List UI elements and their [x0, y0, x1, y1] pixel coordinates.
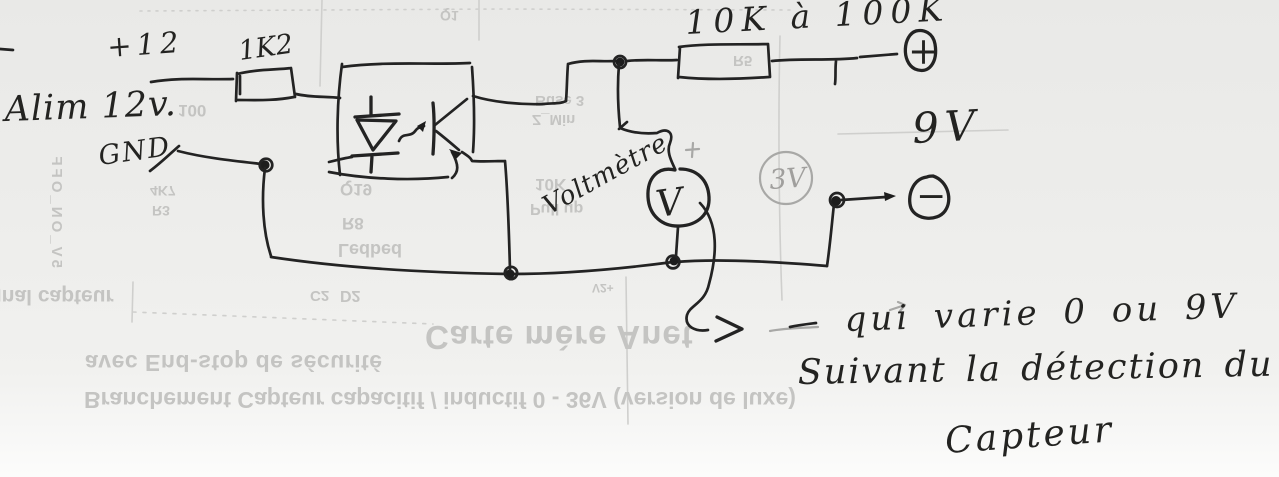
- rail-right-riser: [827, 204, 834, 266]
- note-line3: Capteur: [944, 409, 1116, 462]
- phototransistor-emitter: [436, 131, 459, 150]
- phototransistor-collector: [435, 99, 467, 125]
- showthrough-100: 100: [178, 101, 206, 120]
- rail-bottom-right: [675, 261, 827, 266]
- showthrough-r5: R5: [733, 52, 752, 69]
- wire-gnd-into-box: [329, 157, 352, 162]
- showthrough-z-min: Z_Min: [532, 111, 575, 128]
- wire-emitter-down: [462, 152, 510, 270]
- showthrough-c2: C2: [310, 287, 329, 304]
- minus-terminal-sign: −: [916, 176, 946, 217]
- label-plus12: +12: [106, 25, 184, 64]
- showthrough-4k7: 4K7: [150, 183, 176, 199]
- showthrough-branchement: Branchement Capteur capacitif / inductif…: [84, 387, 796, 413]
- led-anode: [355, 97, 399, 117]
- showthrough-signal-capteur: Signal capteur: [0, 285, 114, 308]
- resistor-r1-box: [236, 68, 295, 101]
- optocoupler-box-bottom: [329, 172, 448, 179]
- label-r1: 1K2: [237, 29, 295, 67]
- pencil-plus-mark: [686, 143, 699, 157]
- label-gnd: GND: [97, 131, 173, 172]
- showthrough-v2: V2+: [592, 281, 614, 295]
- pencil-voltage-label: 3V: [768, 162, 809, 196]
- phototransistor-base: [433, 103, 434, 154]
- showthrough-d2: D2: [340, 287, 361, 304]
- showthrough-on-off: 5V_ON_OFF: [48, 153, 65, 268]
- showthrough-r8: R8: [342, 214, 364, 233]
- ghost-rule-v4: [132, 282, 133, 322]
- showthrough-ledbed: Ledbed: [338, 240, 402, 260]
- wire-r2-right: [772, 58, 857, 84]
- optocoupler-box-top: [342, 63, 470, 67]
- ghost-rule-h3: [133, 312, 433, 324]
- note-line1: qui varie 0 ou 9V: [844, 286, 1240, 340]
- rail-left-riser: [263, 168, 271, 256]
- showthrough-r3: R3: [152, 203, 170, 219]
- label-supply: Alim 12v.: [1, 84, 178, 130]
- rail-bottom-left: [271, 257, 673, 274]
- led-cathode: [352, 153, 398, 172]
- note-line2: Suivant la détection du: [797, 345, 1273, 393]
- showthrough-carte-mere: Carte mère Anet: [425, 319, 694, 356]
- ghost-rule-v1: [320, 0, 322, 86]
- pencil-link-line: [770, 327, 818, 331]
- wire-meter-bottom: [676, 227, 678, 256]
- wire-plus12: [151, 79, 233, 82]
- wire-drop-to-meter: [618, 64, 627, 129]
- edge-mark: [0, 49, 13, 50]
- wire-gnd: [178, 151, 262, 164]
- minus-wire-arrow-head: [884, 192, 896, 201]
- wire-to-r2: [627, 60, 677, 61]
- wire-r1-to-opto: [296, 94, 340, 98]
- showthrough-avec-endstop: avec End-stop de sécurité: [85, 350, 383, 376]
- optocoupler-box-right: [472, 67, 474, 152]
- showthrough-q19: Q19: [340, 180, 372, 199]
- schematic-canvas: Signal capteur Carte mère Anet avec End-…: [0, 0, 1279, 477]
- voltmeter-glyph: V: [653, 179, 689, 226]
- wire-to-minus-terminal: [841, 197, 886, 200]
- scanned-schematic-page: Signal capteur Carte mère Anet avec End-…: [0, 0, 1279, 477]
- label-output-voltage: 9V: [911, 100, 983, 153]
- probe-curl: [687, 203, 715, 330]
- probe-arrow: [716, 317, 742, 341]
- showthrough-buse: Buse 3: [535, 92, 584, 109]
- plus-terminal-sign: +: [908, 30, 939, 73]
- wire-to-plus-terminal: [860, 54, 897, 57]
- resistor-r2-box: [678, 44, 770, 79]
- showthrough-q1: Q1: [440, 8, 459, 24]
- led-triangle: [357, 120, 396, 150]
